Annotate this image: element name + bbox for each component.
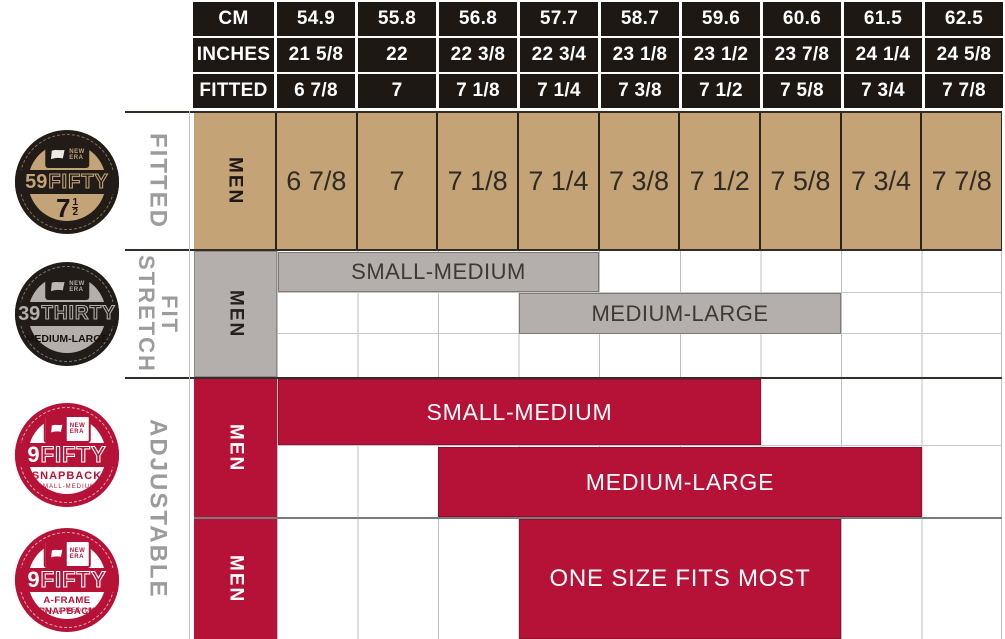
size-whole: 7 [56, 196, 70, 220]
new-era-wordmark: NEW ERA [67, 423, 89, 435]
badge-word: FIFTY [41, 570, 107, 590]
size-header-table: CM 54.9 55.8 56.8 57.7 58.7 59.6 60.6 61… [193, 2, 1003, 108]
new-era-logo: NEW ERA [44, 540, 91, 568]
badge-style-label: SNAPBACK [15, 470, 119, 482]
fitted-size-cell: 7 1/8 [436, 113, 517, 249]
men-cell-stretch: MEN [194, 251, 277, 377]
badge-59fifty: NEW ERA 59 FIFTY 7 1 2 59.6cm [15, 130, 119, 234]
badge-9fifty-aframe: NEW ERA 9 FIFTY A-FRAME SNAPBACK SMALL-M… [15, 528, 119, 632]
stretch-small-medium-bar: SMALL-MEDIUM [278, 252, 599, 292]
badge-9fifty-snapback: NEW ERA 9 FIFTY SNAPBACK SMALL-MEDIUM [15, 403, 119, 507]
fitted-size-cell: 7 7/8 [920, 113, 1001, 249]
new-era-flag-icon [49, 281, 66, 293]
header-inches-value: 24 1/4 [844, 38, 922, 72]
header-inches-value: 23 1/8 [601, 38, 679, 72]
badge-band-39thirty: 39 THIRTY [15, 302, 119, 326]
header-cm-value: 54.9 [277, 2, 355, 36]
section-label-adjustable: ADJUSTABLE [128, 379, 188, 639]
header-fitted-value: 7 1/2 [682, 74, 760, 108]
new-era-logo: NEW ERA [44, 415, 91, 443]
header-fitted-label: FITTED [193, 74, 274, 108]
badge-number: 59 [25, 172, 47, 192]
header-fitted-value: 7 1/4 [520, 74, 598, 108]
header-cm-value: 57.7 [520, 2, 598, 36]
new-era-wordmark: NEW ERA [67, 548, 89, 560]
new-era-logo: NEW ERA [45, 142, 89, 168]
badge-number: 9 [27, 445, 39, 465]
brand-line: ERA [70, 429, 86, 435]
badge-band-9fifty: 9 FIFTY [15, 443, 119, 467]
header-fitted-value: 7 7/8 [925, 74, 1003, 108]
one-size-fits-most-bar: ONE SIZE FITS MOST [519, 519, 841, 639]
new-era-flag-icon [49, 424, 63, 434]
new-era-flag-icon [49, 549, 63, 559]
adjustable-gridline [277, 445, 1002, 446]
header-cm-value: 60.6 [763, 2, 841, 36]
badge-number: 9 [27, 570, 39, 590]
flag-box [46, 542, 67, 566]
new-era-logo: NEW ERA [45, 274, 89, 300]
header-inches-value: 21 5/8 [277, 38, 355, 72]
badge-fit-label: MEDIUM-LARGE [15, 333, 119, 345]
badge-size: 7 1 2 [15, 196, 119, 220]
flag-box [46, 417, 67, 441]
badge-word: FIFTY [41, 445, 107, 465]
header-cm-value: 61.5 [844, 2, 922, 36]
header-inches-value: 24 5/8 [925, 38, 1003, 72]
header-fitted-value: 7 5/8 [763, 74, 841, 108]
size-fraction: 1 2 [72, 198, 78, 217]
badge-size-cm: 59.6cm [15, 224, 119, 230]
men-cell-adjustable-snapback: MEN [194, 379, 277, 517]
header-cm-value: 55.8 [358, 2, 436, 36]
header-inches-value: 23 1/2 [682, 38, 760, 72]
header-fitted-value: 7 3/8 [601, 74, 679, 108]
men-cell-adjustable-aframe: MEN [194, 519, 277, 639]
new-era-wordmark: NEW ERA [69, 149, 85, 161]
fitted-size-cell: 7 3/8 [598, 113, 679, 249]
badge-fit-label: SMALL-MEDIUM [15, 484, 119, 490]
header-cm-value: 59.6 [682, 2, 760, 36]
section-label-fitted: FITTED [128, 113, 188, 249]
fitted-size-cell: 6 7/8 [277, 113, 356, 249]
men-cell-fitted: MEN [194, 113, 277, 249]
header-row-fitted: FITTED 6 7/8 7 7 1/8 7 1/4 7 3/8 7 1/2 7… [193, 74, 1003, 108]
brand-line: ERA [69, 287, 85, 293]
header-cm-value: 58.7 [601, 2, 679, 36]
header-fitted-value: 7 3/4 [844, 74, 922, 108]
header-cm-value: 62.5 [925, 2, 1003, 36]
badge-fit-label: SMALL-MEDIUM [15, 608, 119, 614]
header-inches-label: INCHES [193, 38, 274, 72]
header-inches-value: 22 [358, 38, 436, 72]
header-inches-value: 22 3/8 [439, 38, 517, 72]
adjustable-medium-large-bar: MEDIUM-LARGE [438, 447, 922, 517]
badge-word: FIFTY [48, 172, 109, 192]
badge-word: THIRTY [41, 304, 116, 324]
badge-number: 39 [18, 304, 40, 324]
header-row-cm: CM 54.9 55.8 56.8 57.7 58.7 59.6 60.6 61… [193, 2, 1003, 36]
header-fitted-value: 7 [358, 74, 436, 108]
header-inches-value: 22 3/4 [520, 38, 598, 72]
adjustable-small-medium-bar: SMALL-MEDIUM [278, 379, 761, 445]
fitted-size-cell: 7 1/4 [517, 113, 598, 249]
section-label-stretch-fit: STRETCH FIT [126, 251, 190, 377]
header-inches-value: 23 7/8 [763, 38, 841, 72]
new-era-flag-icon [49, 149, 66, 161]
fitted-sizes-row: 6 7/8 7 7 1/8 7 1/4 7 3/8 7 1/2 7 5/8 7 … [277, 113, 1002, 249]
header-row-inches: INCHES 21 5/8 22 22 3/8 22 3/4 23 1/8 23… [193, 38, 1003, 72]
new-era-size-chart: { "title": "New Era cap sizing chart", "… [0, 0, 1005, 639]
brand-line: ERA [69, 155, 85, 161]
fitted-size-cell: 7 5/8 [759, 113, 840, 249]
fraction-denominator: 2 [72, 208, 78, 217]
fitted-size-cell: 7 3/4 [840, 113, 921, 249]
header-cm-label: CM [193, 2, 274, 36]
fitted-size-cell: 7 1/2 [678, 113, 759, 249]
stretch-medium-large-bar: MEDIUM-LARGE [519, 293, 841, 334]
badge-39thirty: NEW ERA 39 THIRTY MEDIUM-LARGE [15, 262, 119, 366]
badge-band-9fifty-aframe: 9 FIFTY [15, 568, 119, 592]
brand-line: ERA [70, 554, 86, 560]
new-era-wordmark: NEW ERA [69, 281, 85, 293]
header-cm-value: 56.8 [439, 2, 517, 36]
badge-band-59fifty: 59 FIFTY [15, 170, 119, 194]
header-fitted-value: 7 1/8 [439, 74, 517, 108]
header-fitted-value: 6 7/8 [277, 74, 355, 108]
fitted-size-cell: 7 [356, 113, 437, 249]
